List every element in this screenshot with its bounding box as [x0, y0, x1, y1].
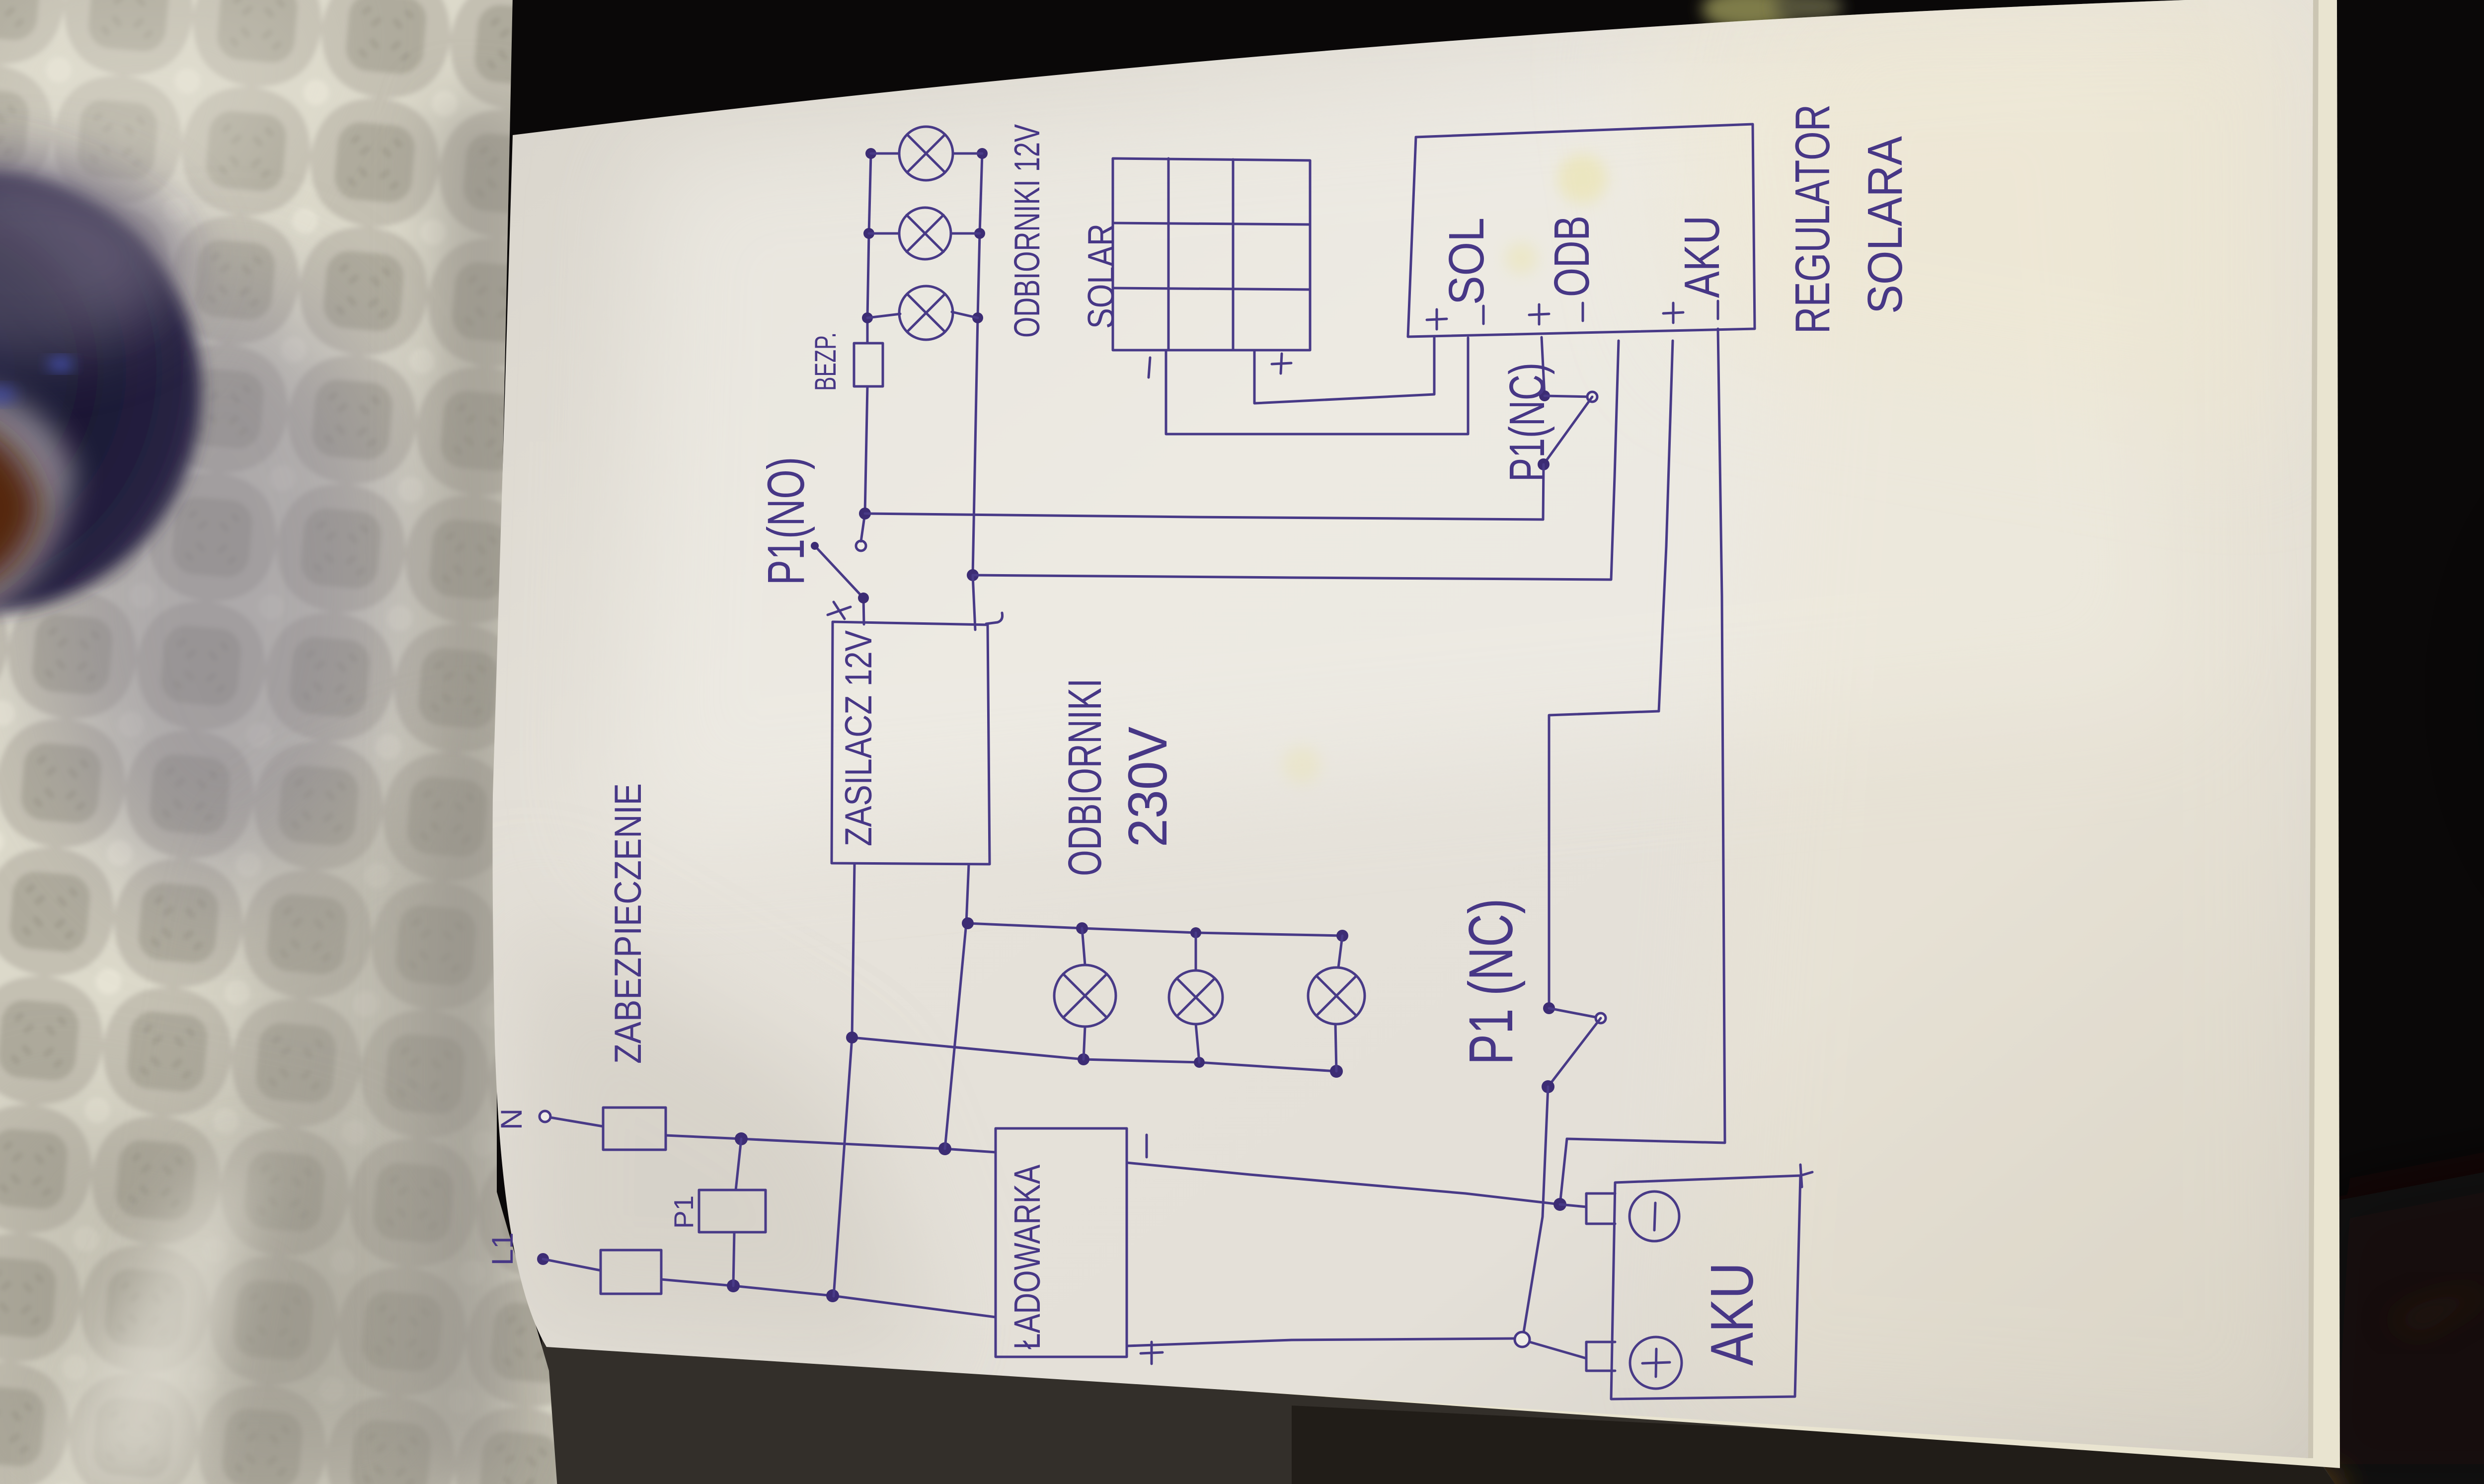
svg-text:ŁADOWARKA: ŁADOWARKA	[1007, 1164, 1048, 1349]
svg-text:ZABEZPIECZENIE: ZABEZPIECZENIE	[607, 783, 649, 1064]
svg-text:SOL: SOL	[1439, 218, 1494, 305]
svg-text:REGULATOR: REGULATOR	[1785, 104, 1840, 334]
svg-text:ODBIORNIKI 12V: ODBIORNIKI 12V	[1008, 124, 1047, 338]
svg-text:P1(NO): P1(NO)	[757, 457, 815, 585]
svg-text:P1: P1	[668, 1195, 699, 1229]
svg-text:230V: 230V	[1117, 727, 1178, 847]
svg-text:P1 (NC): P1 (NC)	[1457, 898, 1526, 1065]
svg-text:SOLARA: SOLARA	[1858, 136, 1912, 314]
svg-text:SOLAR: SOLAR	[1080, 223, 1122, 329]
svg-text:AKU: AKU	[1698, 1262, 1766, 1366]
svg-text:ODB: ODB	[1544, 216, 1600, 297]
svg-text:ODBIORNIKI: ODBIORNIKI	[1059, 678, 1111, 876]
svg-text:L1: L1	[486, 1232, 519, 1265]
svg-text:ZASILACZ 12V: ZASILACZ 12V	[838, 630, 880, 846]
svg-text:P1(NC): P1(NC)	[1499, 363, 1555, 482]
svg-text:BEZP.: BEZP.	[809, 332, 842, 391]
svg-text:N: N	[495, 1109, 528, 1130]
svg-text:AKU: AKU	[1674, 216, 1730, 298]
